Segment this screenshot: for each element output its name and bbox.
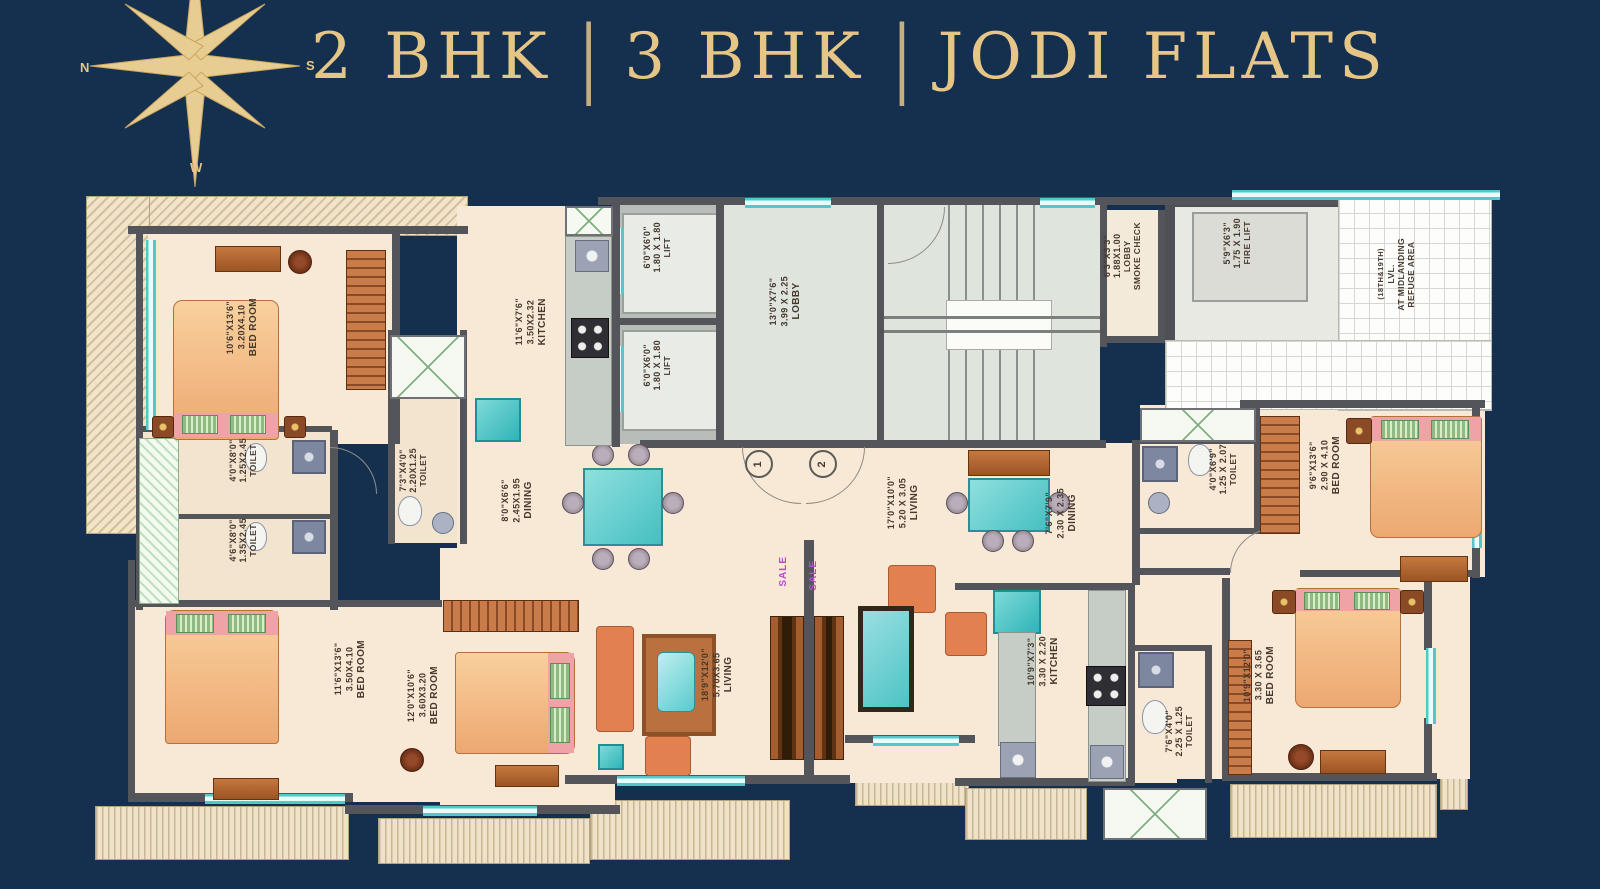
room-label-dining-l: DINING2.45X1.958'0"X6'6" xyxy=(500,478,535,523)
dining-table xyxy=(968,478,1050,532)
chair xyxy=(1012,530,1034,552)
window-living-r xyxy=(873,736,959,746)
room-label-bedroom-lm: BED ROOM3.60X3.2012'0"X10'6" xyxy=(406,666,441,724)
room-label-bedroom-tr: BED ROOM2.90 X 4.109'6"X13'6" xyxy=(1308,436,1343,494)
bed xyxy=(455,652,575,754)
window-bedroom-tl xyxy=(146,240,156,430)
room-label-refuge-area: REFUGE AREAAT MIDLANDINGLVL.(18TH&19TH) xyxy=(1376,238,1416,311)
chajja-bottom-mid xyxy=(378,818,590,864)
kitchen-platform xyxy=(993,590,1041,634)
compass-rose: N S W xyxy=(60,0,330,192)
sink xyxy=(1090,745,1124,779)
wall xyxy=(1205,645,1212,783)
window-stairs-top xyxy=(1040,198,1095,208)
sale-label-b: SALE xyxy=(808,560,820,591)
pillow xyxy=(230,415,266,434)
pillow xyxy=(1431,420,1469,439)
duct-kitchen-top xyxy=(565,206,613,236)
room-label-toilet-l1: TOILET1.25X2.454'0"X8'0" xyxy=(228,438,258,483)
duct-bottom-right xyxy=(1103,788,1207,840)
wall xyxy=(884,440,1106,448)
title-separator: | xyxy=(892,8,912,107)
room-label-bedroom-bl: BED ROOM3.50X4.1011'6"X13'6" xyxy=(333,640,368,698)
wall xyxy=(128,560,135,802)
dresser xyxy=(495,765,559,787)
shaft-left-toilets xyxy=(139,438,179,604)
stair-landing xyxy=(946,300,1052,350)
wardrobe xyxy=(1260,416,1300,534)
wall xyxy=(1100,336,1165,343)
pillow xyxy=(550,663,570,699)
bed xyxy=(1295,588,1401,708)
room-label-lift-1: LIFT1.80 X 1.806'0"X6'0" xyxy=(642,222,672,272)
window-bedroom-br xyxy=(1426,648,1436,724)
flat-number-badge-1: 1 xyxy=(745,450,773,478)
chair xyxy=(592,444,614,466)
chair xyxy=(982,530,1004,552)
wall xyxy=(128,226,468,234)
wall xyxy=(1140,528,1258,534)
room-label-toilet-l2: TOILET1.35X2.454'6"X8'0" xyxy=(228,518,258,563)
bench xyxy=(1400,556,1468,582)
chair xyxy=(562,492,584,514)
wall xyxy=(1128,583,1135,783)
armchair xyxy=(945,612,987,656)
title-2bhk: 2 BHK xyxy=(311,20,553,94)
shower xyxy=(1138,652,1174,688)
washbasin xyxy=(432,512,454,534)
pillow xyxy=(550,707,570,743)
wall xyxy=(1132,440,1140,585)
tv-unit xyxy=(770,616,804,760)
chajja-bottom-right xyxy=(1230,784,1437,838)
page-title: 2 BHK | 3 BHK | JODI FLATS xyxy=(350,2,1350,112)
kitchen-platform xyxy=(475,398,521,442)
chair xyxy=(628,444,650,466)
room-label-living-l: LIVING5.70X3.6518'9"X12'0" xyxy=(700,648,735,701)
chair xyxy=(592,548,614,570)
duct-right-top xyxy=(1140,408,1256,442)
wall xyxy=(1158,210,1165,340)
sofa xyxy=(596,626,634,732)
sideboard xyxy=(968,450,1050,476)
mirror-pot xyxy=(288,250,312,274)
pillow xyxy=(176,614,214,633)
nightstand xyxy=(152,416,174,438)
shower xyxy=(292,440,326,474)
stove xyxy=(1086,666,1126,706)
room-label-lift-2: LIFT1.80 X 1.806'0"X6'0" xyxy=(642,340,672,390)
chajja-bottom-living xyxy=(590,800,790,860)
nightstand xyxy=(1346,418,1372,444)
dining-table xyxy=(583,468,663,546)
chair xyxy=(662,492,684,514)
title-3bhk: 3 BHK xyxy=(624,20,866,94)
room-label-toilet-tr: TOILET1.25 X 2.074'0"X6'9" xyxy=(1208,444,1238,494)
compass-label-w: W xyxy=(190,160,202,175)
side-table xyxy=(598,744,624,770)
room-label-lobby: LOBBY3.99 X 2.2513'0"X7'6" xyxy=(768,276,803,326)
chair xyxy=(628,548,650,570)
room-label-kitchen-l: KITCHEN3.50X2.3211'6"X7'6" xyxy=(514,298,549,345)
chajja-bottom-kitchen-right xyxy=(965,788,1087,840)
room-label-fire-lift: FIRE LIFT1.75 X 1.905'9"X6'3" xyxy=(1222,218,1252,268)
nightstand xyxy=(284,416,306,438)
tv-unit xyxy=(858,606,914,712)
flat-number-badge-2: 2 xyxy=(809,450,837,478)
coffee-table xyxy=(657,652,695,712)
compass-label-n: N xyxy=(80,60,89,75)
wall xyxy=(1132,568,1230,575)
nightstand xyxy=(1400,590,1424,614)
tv-unit xyxy=(814,616,844,760)
shower xyxy=(292,520,326,554)
wall xyxy=(716,204,724,444)
room-label-kitchen-r: KITCHEN3.30 X 2.2010'9"X7'3" xyxy=(1026,636,1061,686)
toilet-wc xyxy=(398,496,422,526)
chajja-bottom-left xyxy=(95,806,349,860)
sink xyxy=(575,240,609,272)
room-label-living-r: LIVING5.20 X 3.0517'0"X10'0" xyxy=(886,476,921,529)
mirror-pot xyxy=(400,748,424,772)
pillow xyxy=(1381,420,1419,439)
wall xyxy=(877,197,884,447)
duct-left-mid xyxy=(390,335,466,399)
pillow xyxy=(1304,592,1340,610)
wall xyxy=(1222,773,1437,781)
window-bedroom-lm xyxy=(423,806,537,816)
room-label-bedroom-br: BED ROOM3.30 X 3.6510'9"X12'0" xyxy=(1242,646,1277,704)
armchair xyxy=(645,736,691,776)
wall xyxy=(1240,400,1485,408)
washbasin xyxy=(1148,492,1170,514)
door-arc-bedroom-tl xyxy=(330,447,377,494)
wall xyxy=(955,583,1135,590)
flat-number-1: 1 xyxy=(753,461,765,468)
wall xyxy=(1128,645,1212,651)
title-jodi-flats: JODI FLATS xyxy=(938,20,1389,94)
dresser xyxy=(1320,750,1386,774)
room-label-toilet-lm: TOILET2.20X1.257'3"X4'0" xyxy=(398,448,428,493)
window-refuge-top xyxy=(1232,190,1500,200)
pillow xyxy=(1354,592,1390,610)
room-label-bedroom-tl: BED ROOM3.20X4.1010'6"X13'6" xyxy=(225,298,260,356)
wall xyxy=(598,197,1338,205)
wall xyxy=(612,318,724,325)
room-label-toilet-br: TOILET2.25 X 1.257'6"X4'0" xyxy=(1164,706,1194,756)
wall xyxy=(1424,718,1432,778)
sale-label-a: SALE xyxy=(778,556,790,587)
room-label-smoke-check-lobby: SMOKE CHECKLOBBY1.88X1.006'3"X3'3" xyxy=(1102,222,1142,290)
mirror-pot xyxy=(1288,744,1314,770)
pillow xyxy=(228,614,266,633)
shower xyxy=(1142,446,1178,482)
window-living-l xyxy=(617,776,745,786)
stair-rail xyxy=(884,316,1100,319)
nightstand xyxy=(1272,590,1296,614)
bed xyxy=(165,610,279,744)
window-lobby-top xyxy=(745,198,831,208)
stair-rail xyxy=(884,330,1100,333)
chair xyxy=(946,492,968,514)
floor-plan-page: N S W 2 BHK | 3 BHK | JODI FLATS xyxy=(0,0,1600,889)
stove xyxy=(571,318,609,358)
dresser xyxy=(215,246,281,272)
wall xyxy=(1424,578,1432,650)
pillow xyxy=(182,415,218,434)
room-label-dining-r: DINING2.30 X 2.357'6"X7'9" xyxy=(1044,488,1079,538)
wardrobe xyxy=(443,600,579,632)
dresser xyxy=(213,778,279,800)
flat-number-2: 2 xyxy=(817,461,829,468)
wardrobe xyxy=(346,250,386,390)
bed xyxy=(1370,416,1482,538)
sink xyxy=(1000,742,1036,778)
title-separator: | xyxy=(579,8,599,107)
